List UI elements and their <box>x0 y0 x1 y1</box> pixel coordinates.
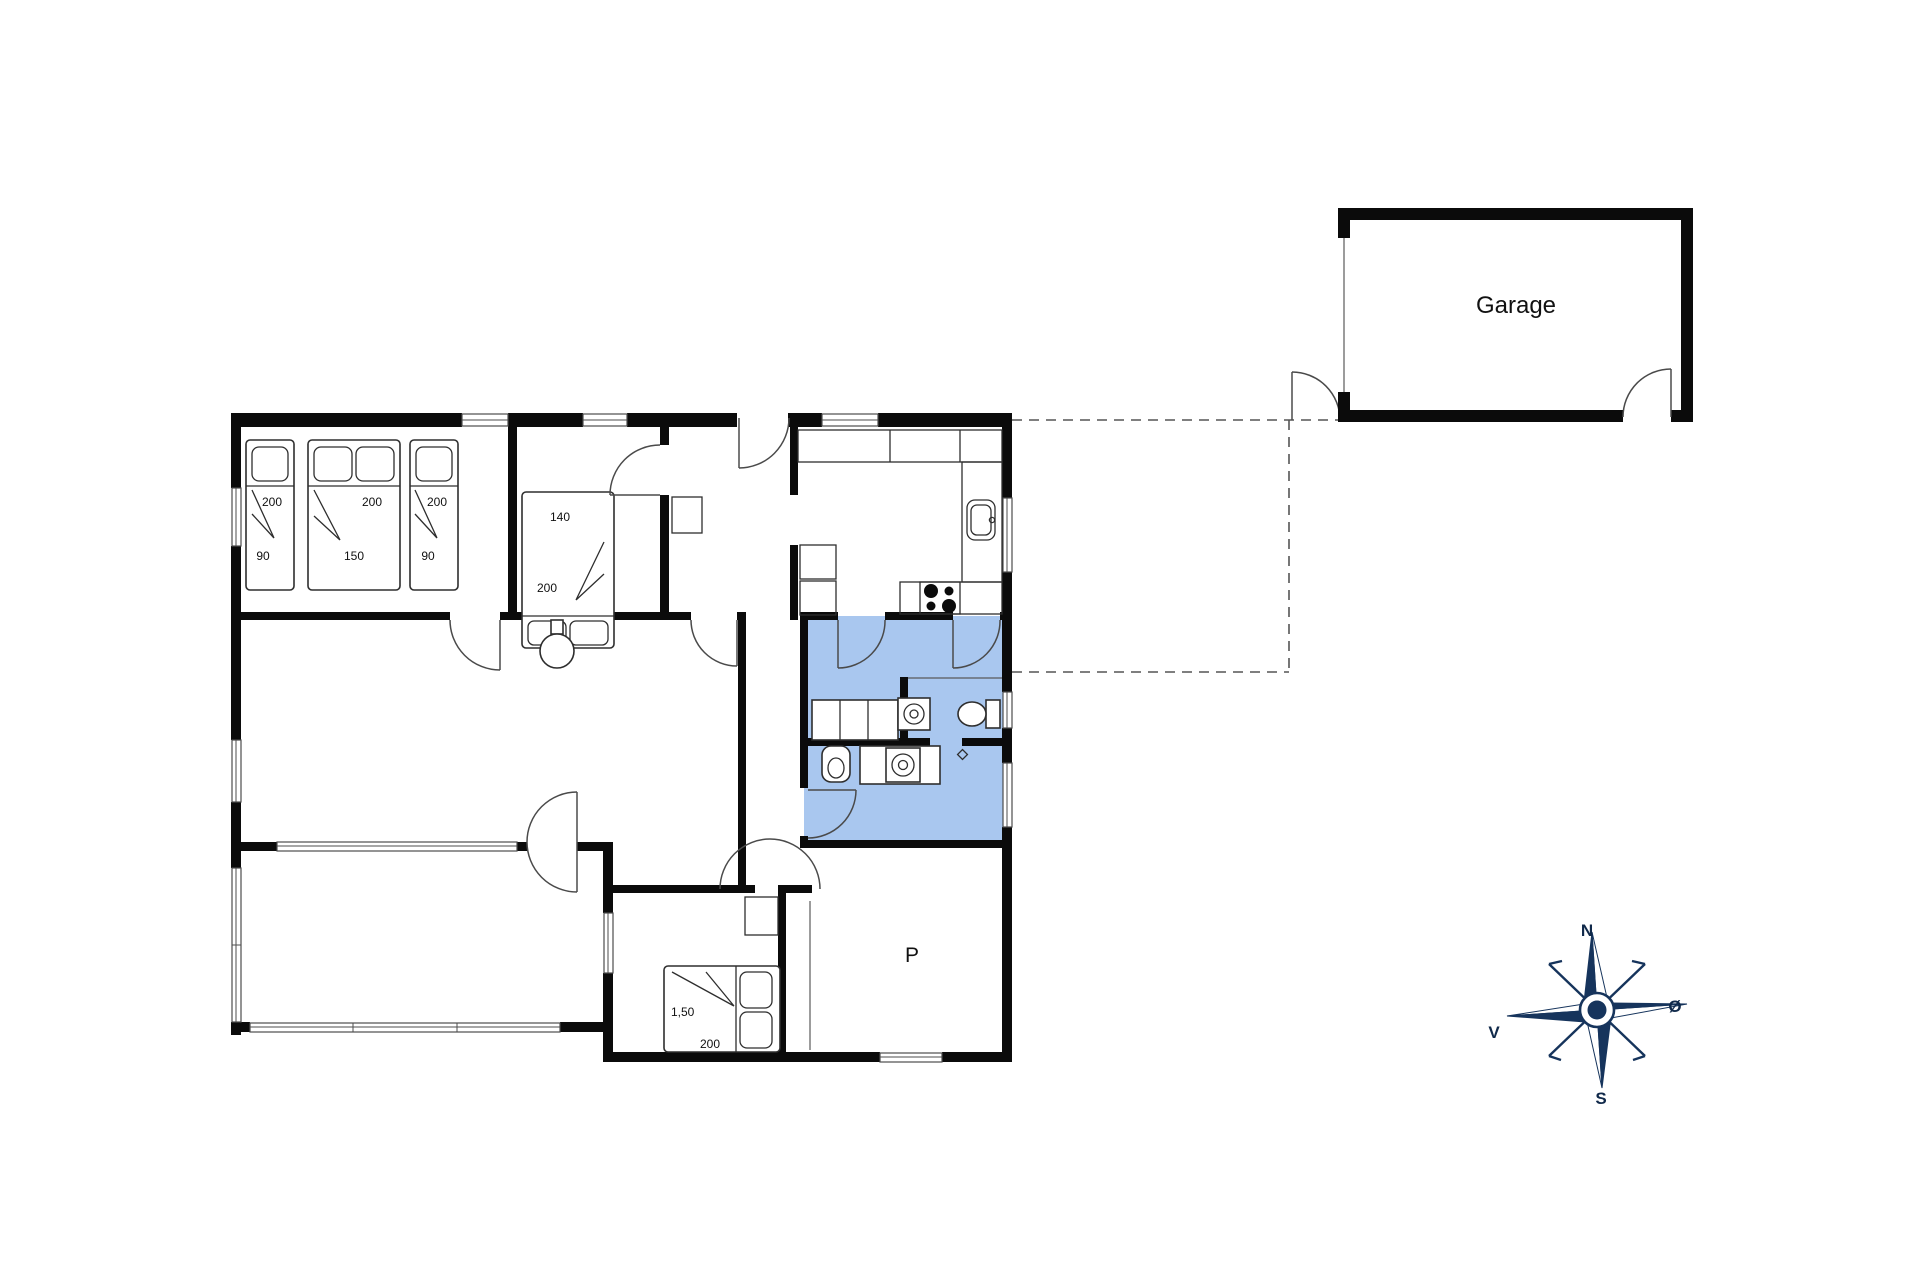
window-band <box>250 1023 560 1032</box>
window <box>1003 498 1012 572</box>
floor-plan-canvas: 200 90 200 150 200 90 <box>0 0 1920 1279</box>
bed-single-left: 200 90 <box>246 440 294 590</box>
compass-label-south: S <box>1595 1089 1606 1108</box>
compass-label-north: N <box>1581 921 1593 940</box>
bed-length-label: 200 <box>537 581 557 595</box>
bed-140: 140 200 <box>522 492 614 648</box>
window <box>232 740 241 802</box>
walkway-gate-door <box>1292 372 1340 420</box>
room-p-label: P <box>905 944 919 967</box>
window <box>583 414 627 426</box>
compass-label-east: Ø <box>1668 997 1681 1016</box>
window <box>232 488 241 546</box>
washing-machine <box>898 698 930 730</box>
garage-label: Garage <box>1476 292 1556 319</box>
window <box>1003 763 1012 827</box>
toilet <box>958 700 1000 728</box>
utility-counter <box>812 700 898 740</box>
garage: Garage <box>1338 208 1693 422</box>
bed-length-label: 200 <box>700 1037 720 1051</box>
walkway-dashed <box>1012 372 1341 672</box>
window <box>822 414 878 426</box>
window <box>462 414 508 426</box>
room-p: P <box>905 944 919 967</box>
compass-hub <box>1588 1001 1607 1020</box>
window <box>1003 692 1012 728</box>
bed-width-label: 90 <box>421 549 435 563</box>
compass-rose: N S Ø V <box>1488 921 1687 1108</box>
bed-length-label: 200 <box>262 495 282 509</box>
compass-label-west: V <box>1488 1023 1500 1042</box>
house: 200 90 200 150 200 90 <box>231 413 1012 1062</box>
bed-length-label: 200 <box>427 495 447 509</box>
bed-length-label: 200 <box>362 495 382 509</box>
washer-dryer <box>886 748 920 782</box>
floor-plan-drawing: 200 90 200 150 200 90 <box>0 0 1920 1279</box>
bedroom-1: 200 90 200 150 200 90 <box>246 440 458 590</box>
bed-width-label: 1,50 <box>671 1005 695 1019</box>
window <box>604 913 613 973</box>
window-band <box>277 842 517 851</box>
bed-width-label: 150 <box>344 549 364 563</box>
window <box>880 1053 942 1062</box>
wall-bedroom1-bedroom2 <box>508 427 517 620</box>
bed-150-bottom: 1,50 200 <box>664 966 780 1052</box>
window <box>232 868 241 1022</box>
bed-width-label: 90 <box>256 549 270 563</box>
bed-width-label: 140 <box>550 510 570 524</box>
bed-single-right: 200 90 <box>410 440 458 590</box>
hand-basin <box>822 746 850 782</box>
bed-double: 200 150 <box>308 440 400 590</box>
